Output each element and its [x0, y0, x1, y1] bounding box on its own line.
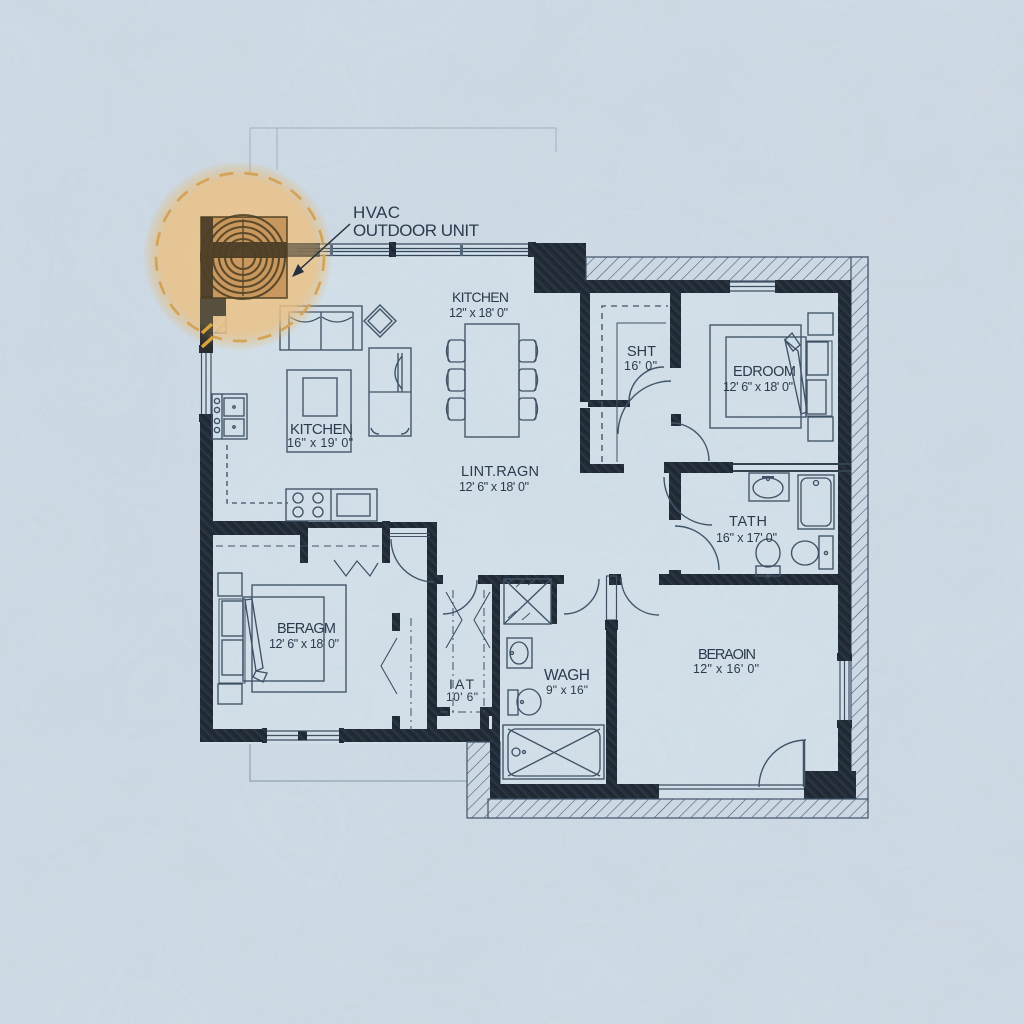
svg-text:12" x 18' 0": 12" x 18' 0" — [449, 306, 508, 320]
svg-text:EDROOM: EDROOM — [733, 364, 796, 380]
svg-text:16" x 19' 0": 16" x 19' 0" — [287, 436, 353, 450]
svg-text:12" x 16' 0": 12" x 16' 0" — [693, 662, 759, 676]
svg-text:BERAGM: BERAGM — [277, 621, 336, 637]
svg-text:HVAC: HVAC — [353, 203, 400, 222]
svg-text:SHT: SHT — [627, 344, 656, 360]
svg-text:WAGH: WAGH — [544, 667, 590, 684]
svg-text:12' 6" x 18' 0": 12' 6" x 18' 0" — [723, 380, 793, 394]
svg-text:12' 6" x 18' 0": 12' 6" x 18' 0" — [269, 637, 339, 651]
svg-text:LINT.RAGN: LINT.RAGN — [461, 464, 539, 480]
svg-text:OUTDOOR UNIT: OUTDOOR UNIT — [353, 221, 479, 240]
svg-text:10' 6": 10' 6" — [446, 690, 478, 704]
svg-text:BERAOIN: BERAOIN — [698, 647, 756, 663]
svg-text:16" x 17' 0": 16" x 17' 0" — [716, 531, 777, 545]
svg-text:12' 6" x 18' 0": 12' 6" x 18' 0" — [459, 480, 529, 494]
svg-text:KITCHEN: KITCHEN — [452, 289, 509, 305]
svg-text:16' 0": 16' 0" — [624, 359, 657, 373]
svg-text:9" x 16": 9" x 16" — [546, 683, 588, 697]
svg-text:TATH: TATH — [729, 514, 767, 530]
